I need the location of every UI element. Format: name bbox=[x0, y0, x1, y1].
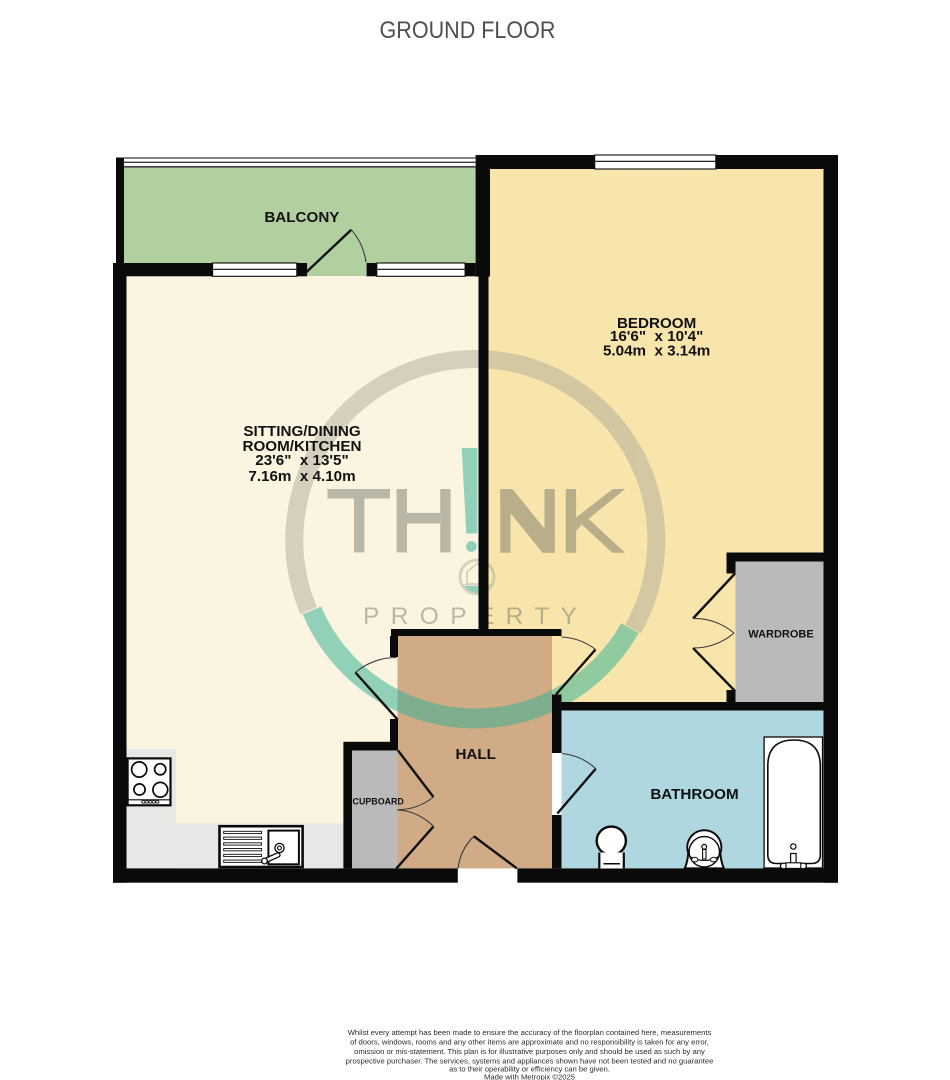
svg-text:GROUND FLOOR: GROUND FLOOR bbox=[380, 17, 556, 44]
svg-text:of doors, windows, rooms and a: of doors, windows, rooms and any other i… bbox=[350, 1037, 709, 1046]
svg-text:5.04m x 3.14m: 5.04m x 3.14m bbox=[603, 342, 710, 359]
svg-text:Made with Metropix ©2025: Made with Metropix ©2025 bbox=[484, 1072, 575, 1080]
svg-text:CUPBOARD: CUPBOARD bbox=[353, 797, 405, 807]
svg-text:BALCONY: BALCONY bbox=[264, 209, 339, 226]
svg-text:HALL: HALL bbox=[455, 746, 496, 763]
svg-text:23'6" x 13'5": 23'6" x 13'5" bbox=[255, 452, 348, 469]
svg-text:7.16m x 4.10m: 7.16m x 4.10m bbox=[248, 468, 355, 485]
svg-text:WARDROBE: WARDROBE bbox=[748, 628, 813, 640]
svg-text:BATHROOM: BATHROOM bbox=[650, 786, 738, 803]
svg-text:omission or mis-statement. Thi: omission or mis-statement. This plan is … bbox=[354, 1047, 705, 1056]
svg-text:Whilst every attempt has been: Whilst every attempt has been made to en… bbox=[348, 1028, 712, 1037]
